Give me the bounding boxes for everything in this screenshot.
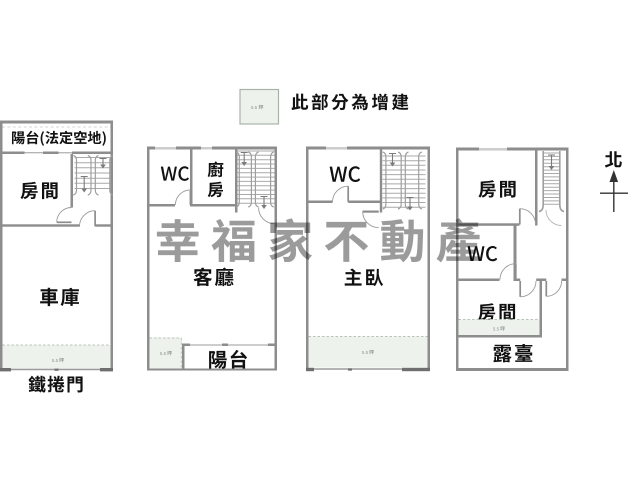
svg-text:5.5: 5.5 xyxy=(52,358,59,363)
svg-text:5.5: 5.5 xyxy=(362,350,369,355)
svg-text:5.5: 5.5 xyxy=(251,105,258,110)
svg-text:5.5: 5.5 xyxy=(493,327,500,332)
svg-text:5.5: 5.5 xyxy=(160,351,167,356)
